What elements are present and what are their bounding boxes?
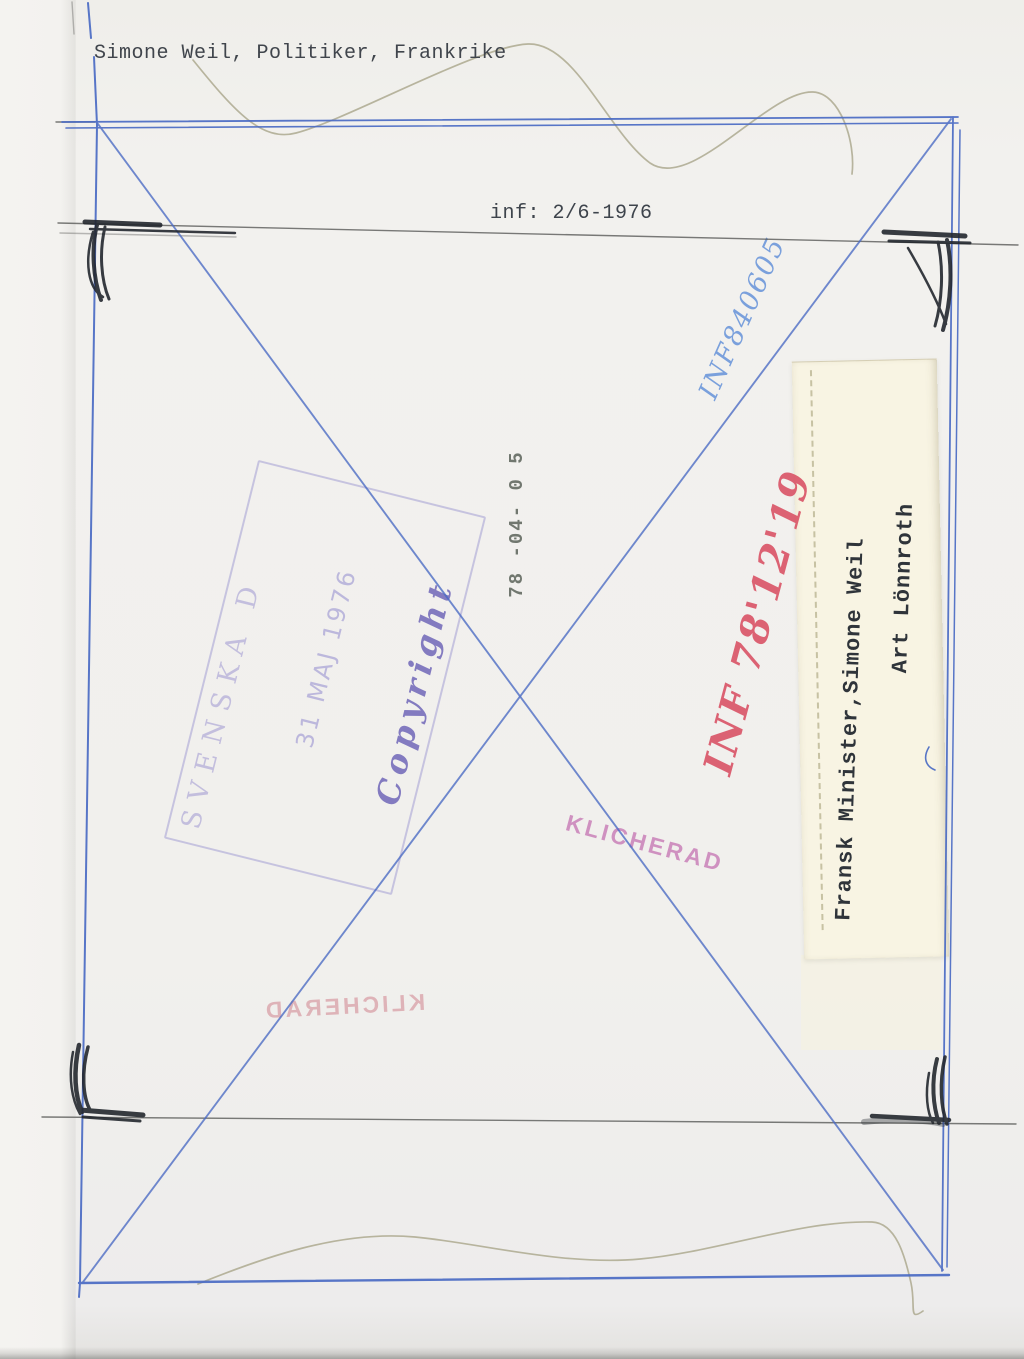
- pencil-rule-secondary: [60, 233, 236, 237]
- caption-typed: Simone Weil, Politiker, Frankrike: [94, 42, 507, 65]
- frame-top-line-1: [62, 117, 958, 122]
- blue-crop-frame: [62, 3, 960, 1297]
- corner-scribble-bottom-left: [71, 1045, 143, 1121]
- pencil-rule-under-inf: [58, 223, 1018, 245]
- photo-verso-scan: SVENSKA D 31 MAJ 1976 Copyright KLICHERA…: [0, 0, 1024, 1359]
- label-line-2: Art Lönnroth: [883, 502, 923, 673]
- frame-top-line-2: [66, 123, 958, 128]
- squiggle-bottom: [198, 1222, 923, 1315]
- corner-scribble-top-right: [884, 232, 970, 330]
- blue-hook-right-edge: [926, 747, 935, 770]
- pencil-tick-top-left: [72, 2, 74, 34]
- corner-scribble-bottom-right: [864, 1057, 949, 1124]
- blue-tick-top-left: [88, 3, 91, 38]
- crop-diagonal-trbl: [83, 119, 951, 1282]
- inf-date-typed: inf: 2/6-1976: [490, 202, 653, 225]
